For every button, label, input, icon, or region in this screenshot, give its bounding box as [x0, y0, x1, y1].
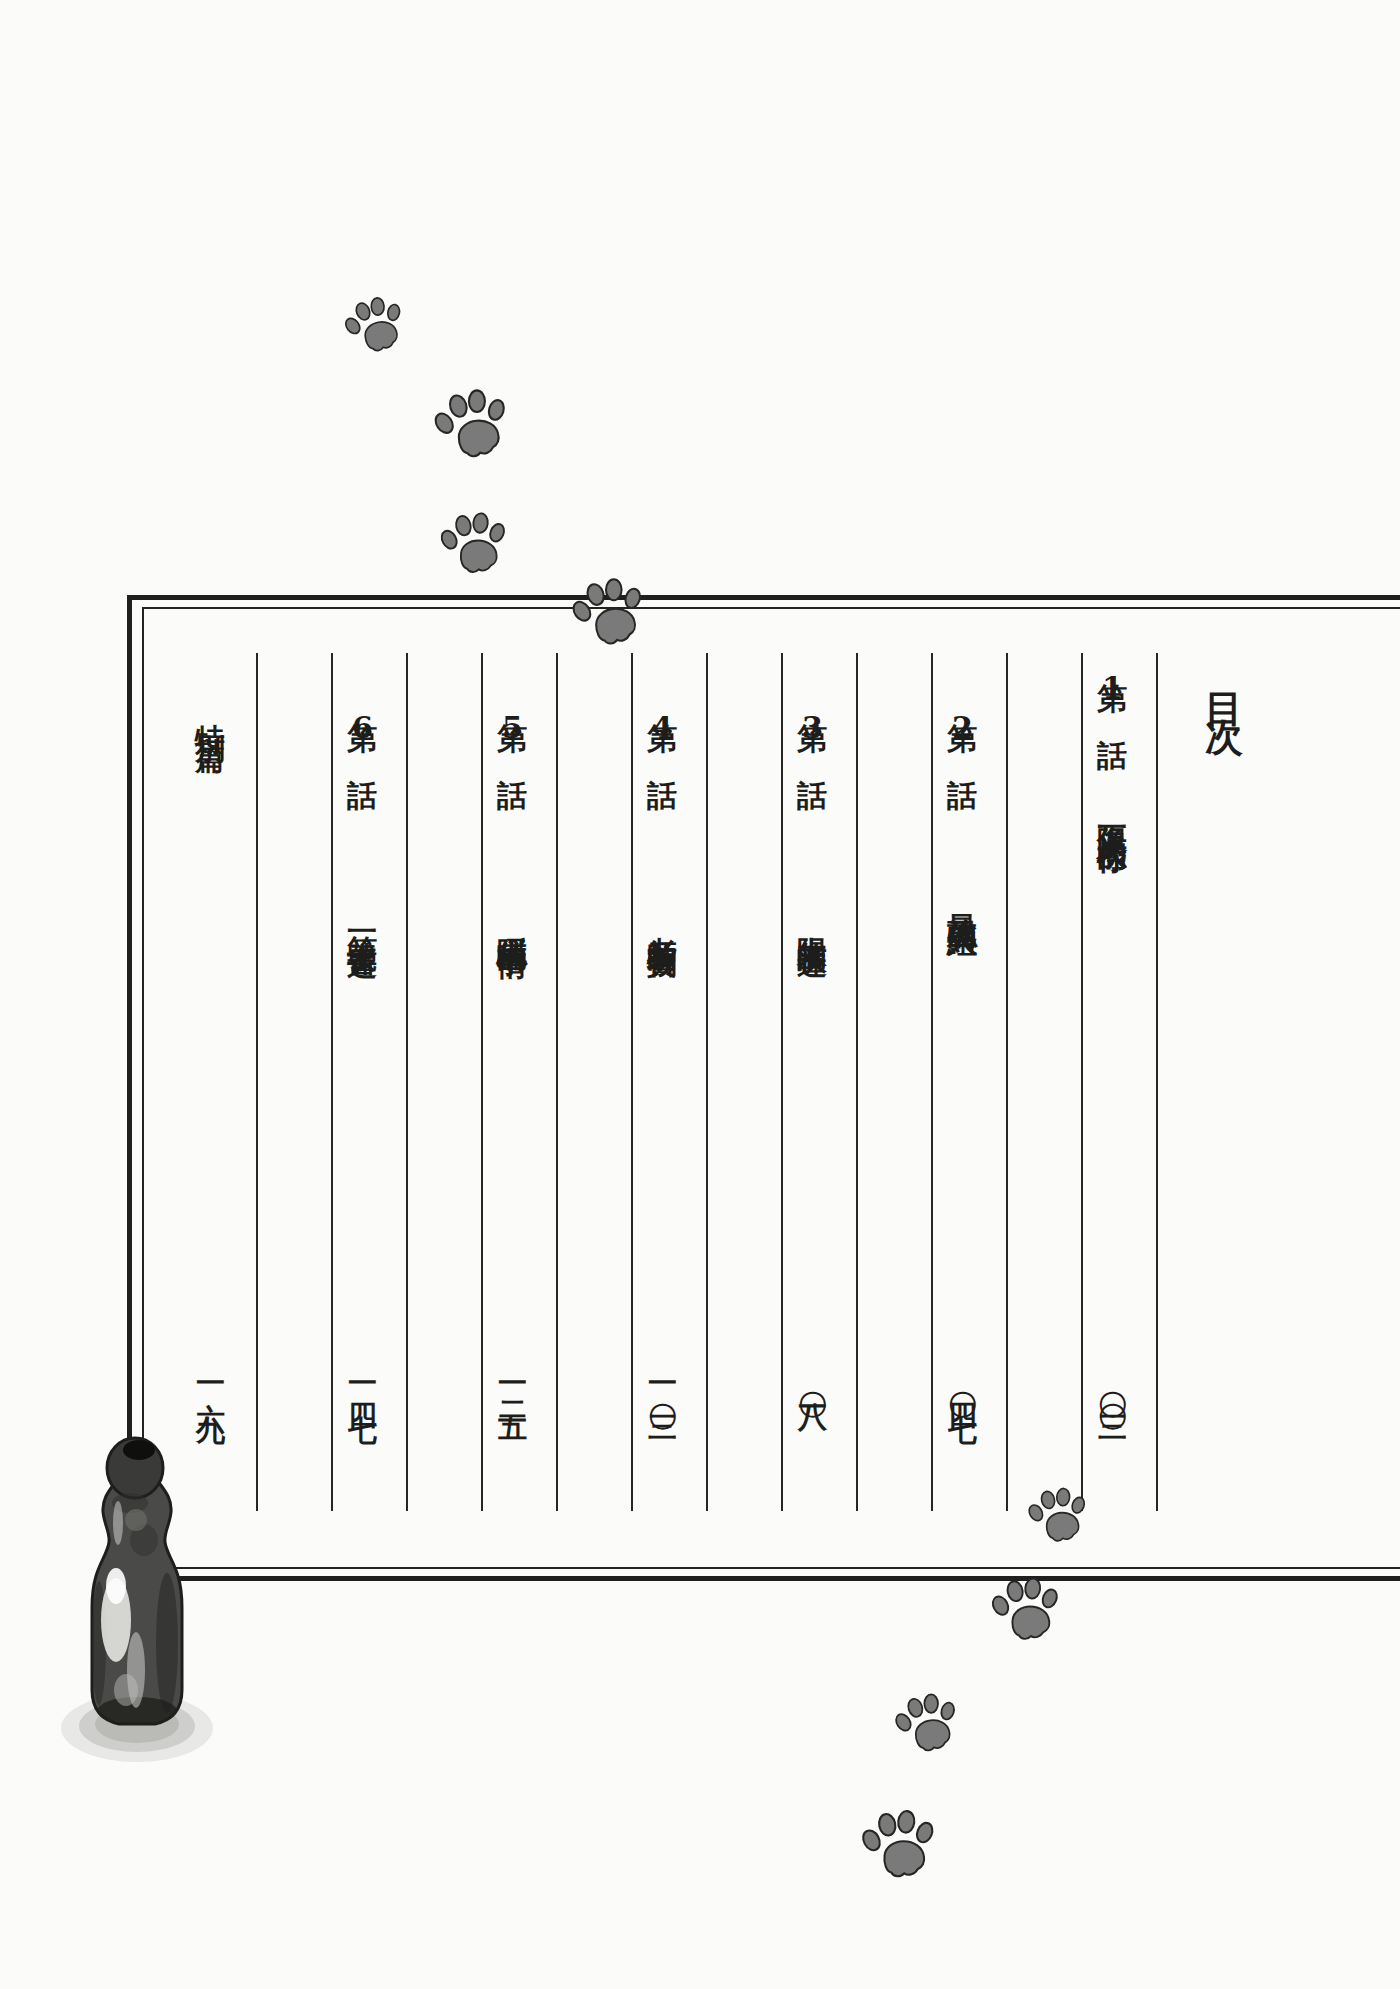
column-divider-line	[1006, 653, 1008, 1511]
paw-print-icon	[564, 567, 654, 657]
paw-print-icon	[987, 1570, 1066, 1649]
paw-print-icon	[856, 1801, 941, 1886]
page-number: 一二五	[498, 1368, 527, 1404]
column-divider-line	[931, 653, 933, 1511]
column-divider-line	[481, 653, 483, 1511]
page-number: 一〇三	[648, 1368, 677, 1404]
chapter-title: 老師的寶物	[647, 912, 677, 927]
page-number: 〇八一	[798, 1368, 827, 1404]
chapter-label: 第1話	[1097, 660, 1127, 725]
column-divider-line	[1156, 653, 1158, 1511]
chapter-title: 太陽的味道	[797, 912, 827, 927]
column-divider-line	[631, 653, 633, 1511]
chapter-title: 像陽光一樣的你	[1097, 802, 1127, 823]
table-of-contents-page: 目次 第1話 像陽光一樣的你 〇〇三 第2話 最強的二人組 〇四七 第3話 太陽…	[0, 0, 1400, 1989]
column-divider-line	[406, 653, 408, 1511]
chapter-title: 第一號書迷	[347, 912, 377, 927]
page-number: 一四七	[348, 1368, 377, 1404]
chapter-label: 第4話	[647, 700, 677, 765]
toc-entry-chapter-4: 第4話 老師的寶物 一〇三	[646, 0, 692, 1989]
paw-print-icon	[426, 378, 519, 471]
column-divider-line	[856, 653, 858, 1511]
toc-entry-chapter-3: 第3話 太陽的味道 〇八一	[796, 0, 842, 1989]
column-divider-line	[1081, 653, 1083, 1511]
chapter-label: 第2話	[947, 700, 977, 765]
column-divider-line	[556, 653, 558, 1511]
chapter-label: 第6話	[347, 700, 377, 765]
paw-print-icon	[888, 1684, 967, 1763]
column-divider-line	[781, 653, 783, 1511]
column-divider-line	[256, 653, 258, 1511]
page-number: 〇〇三	[1098, 1368, 1127, 1404]
toc-entry-chapter-5: 第5話 隱瞞的事情 一二五	[496, 0, 542, 1989]
page-title: 目次	[1205, 663, 1243, 715]
chapter-title: 隱瞞的事情	[497, 912, 527, 927]
toc-entry-chapter-1: 第1話 像陽光一樣的你 〇〇三	[1096, 0, 1142, 1989]
chapter-label: 第5話	[497, 700, 527, 765]
page-number: 一六九	[196, 1368, 225, 1404]
column-divider-line	[706, 653, 708, 1511]
chapter-title: 最強的二人組	[947, 890, 977, 908]
chapter-label: 特別篇	[195, 700, 225, 730]
ramune-bottle-icon	[52, 1428, 222, 1773]
page-number: 〇四七	[948, 1368, 977, 1404]
paw-print-icon	[436, 505, 513, 582]
paw-print-icon	[1023, 1480, 1093, 1550]
chapter-label: 第3話	[797, 700, 827, 765]
column-divider-line	[331, 653, 333, 1511]
paw-print-icon	[336, 286, 414, 364]
